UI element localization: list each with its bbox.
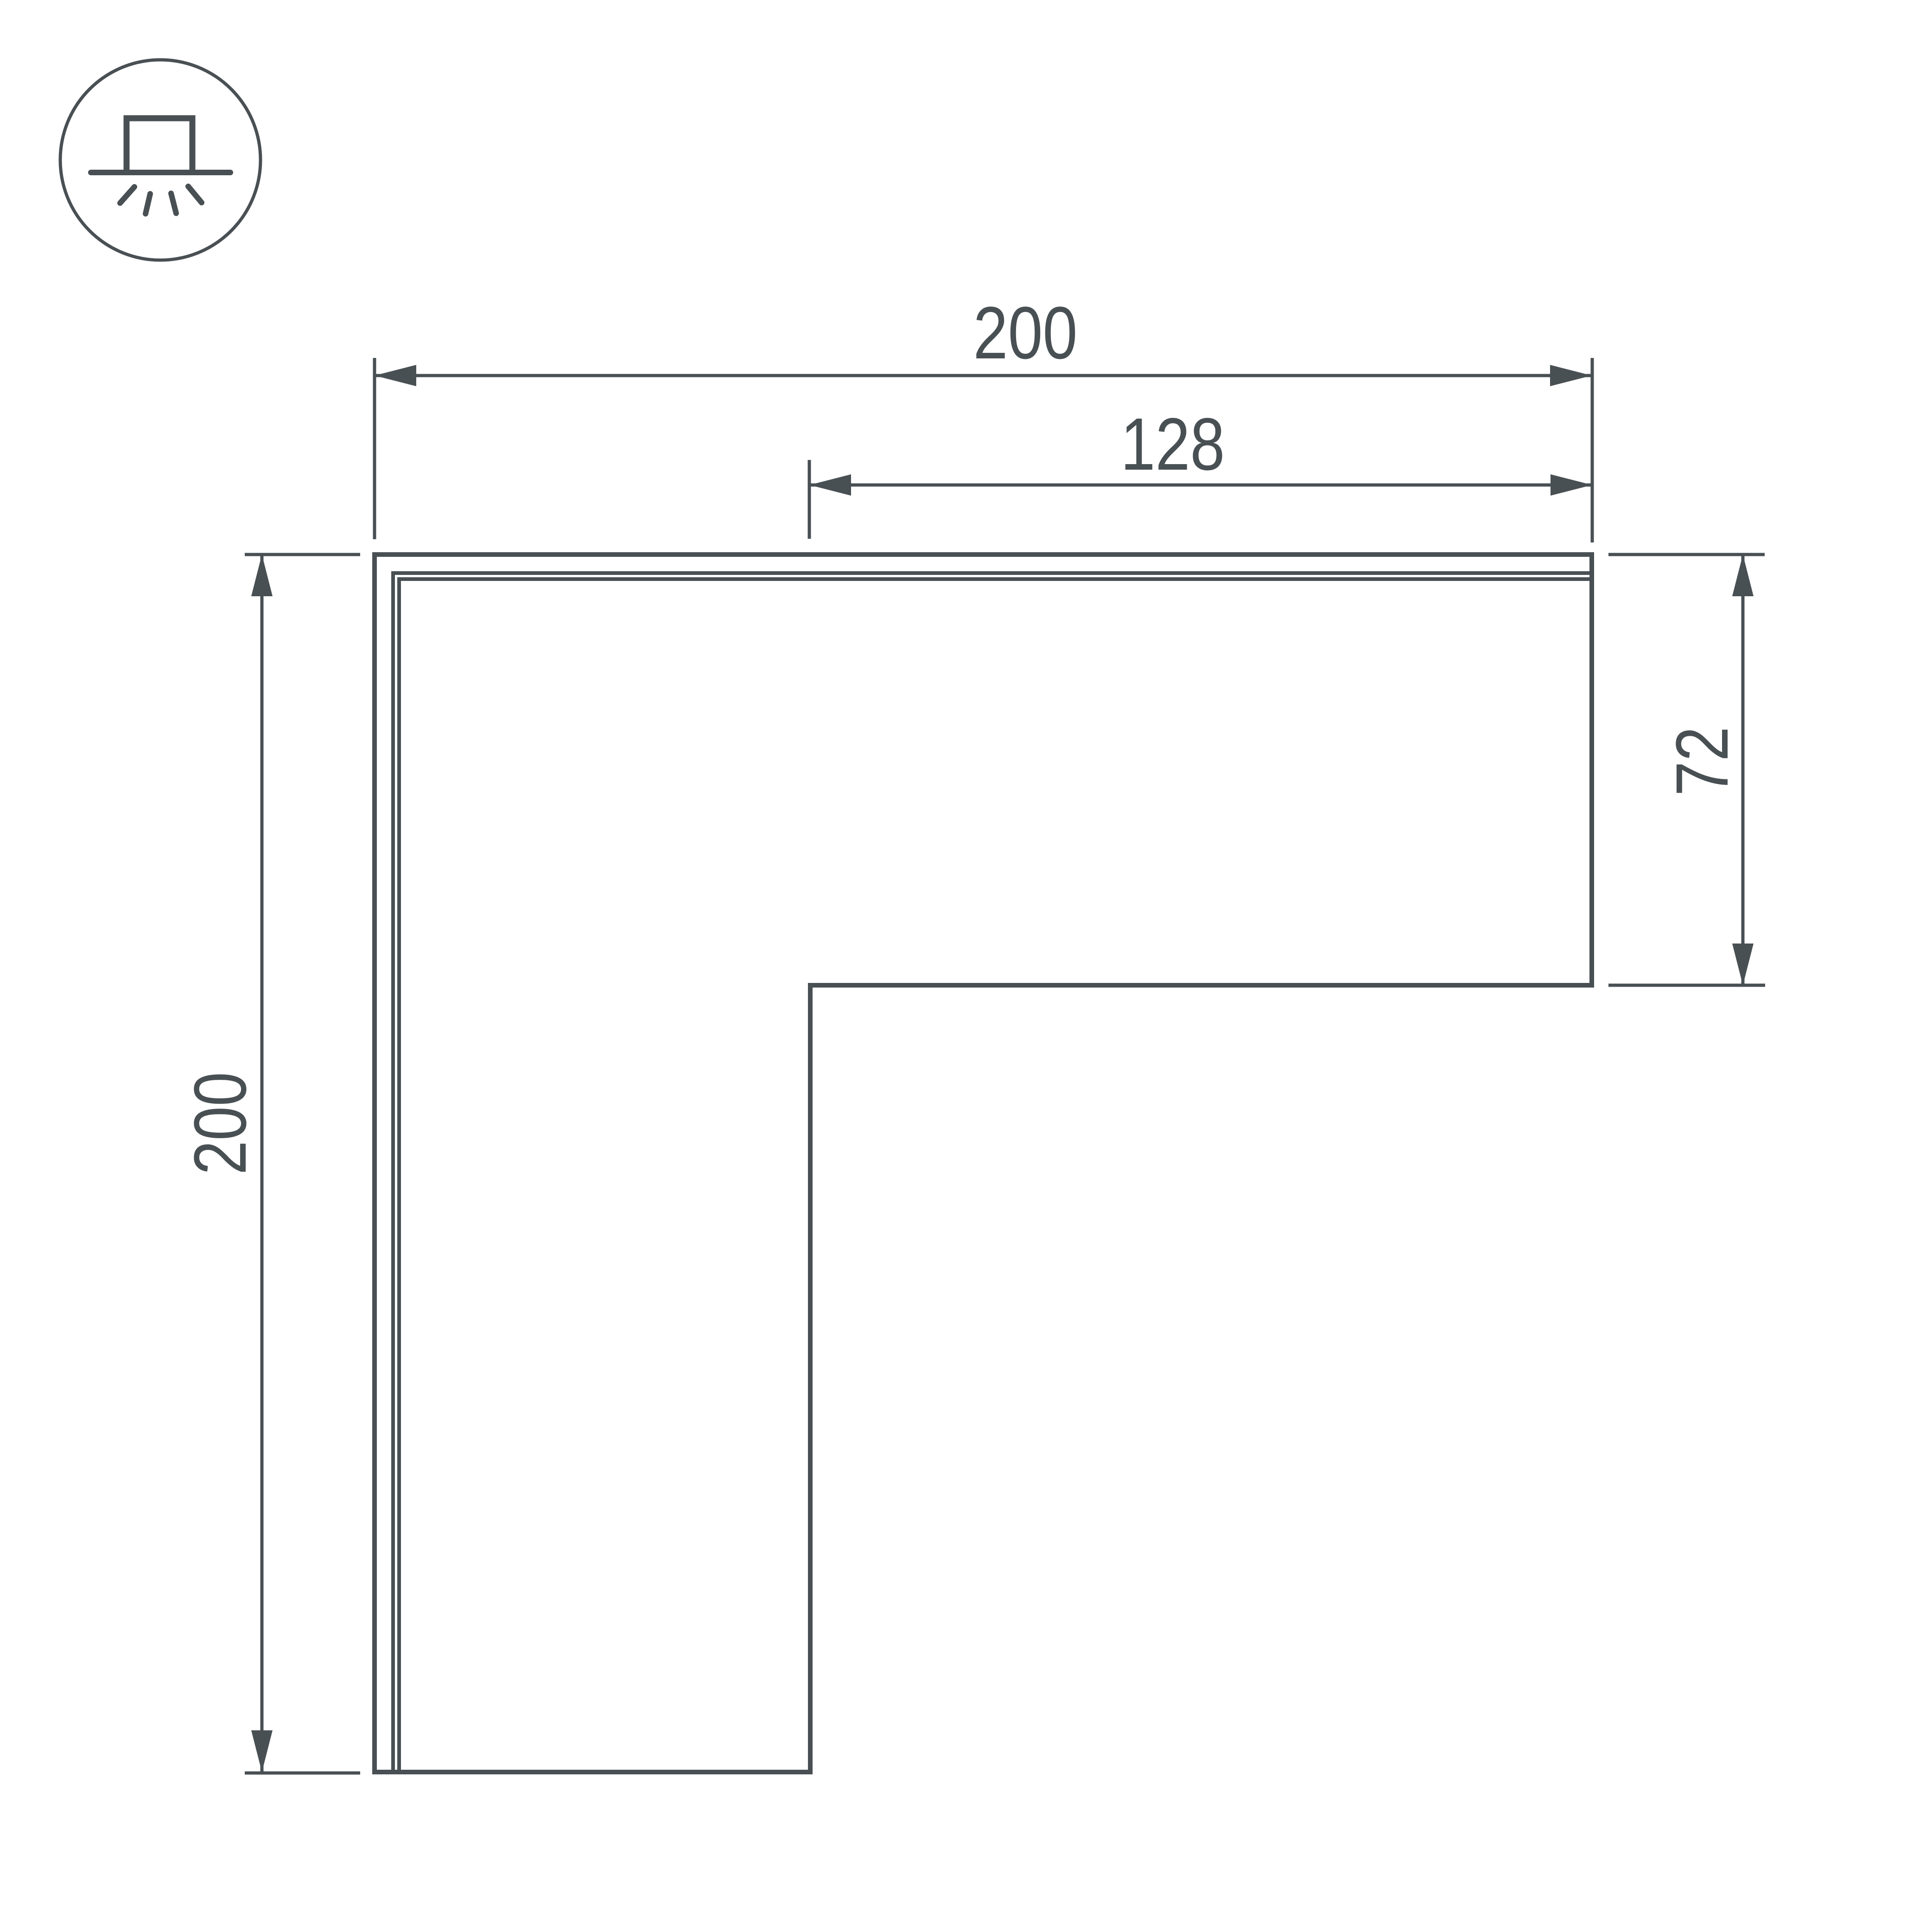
arrowhead-right-icon	[1551, 474, 1592, 496]
dimension-top-width: 200	[375, 291, 1592, 542]
dimension-left-height: 200	[178, 555, 360, 1773]
ceiling-light-icon	[60, 60, 261, 260]
profile-outline	[375, 555, 1592, 1772]
arrowhead-down-icon	[1732, 944, 1754, 985]
profile-inner-line-inner	[399, 579, 1589, 1770]
arrowhead-left-icon	[809, 474, 851, 496]
dimension-label-inner-width: 128	[1121, 402, 1225, 485]
lamp-body-icon	[127, 118, 192, 172]
profile-inner-line-outer	[393, 573, 1589, 1770]
dimension-label-right-depth: 72	[1660, 727, 1743, 796]
technical-drawing-canvas: 200 128 200 72	[0, 0, 1932, 1932]
arrowhead-left-icon	[375, 365, 416, 386]
arrowhead-up-icon	[1732, 555, 1754, 596]
arrowhead-up-icon	[251, 555, 273, 596]
light-rays-icon	[120, 186, 202, 214]
l-profile	[375, 555, 1592, 1772]
dimension-inner-width: 128	[809, 402, 1592, 539]
dimension-right-depth: 72	[1608, 555, 1765, 985]
dimension-label-left-height: 200	[178, 1072, 261, 1175]
dimension-label-top-width: 200	[973, 291, 1078, 374]
technical-drawing-page: 200 128 200 72	[0, 0, 1932, 1932]
arrowhead-down-icon	[251, 1730, 273, 1772]
arrowhead-right-icon	[1550, 365, 1592, 386]
icon-circle	[60, 60, 261, 260]
